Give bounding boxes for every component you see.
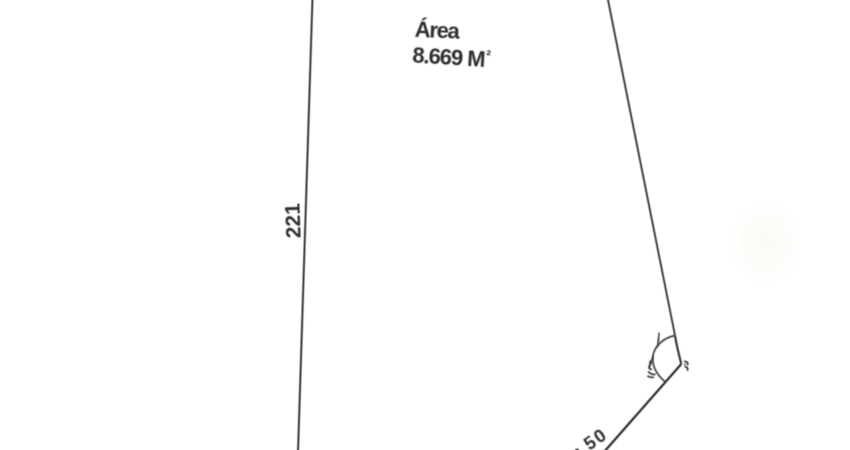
svg-text:Área: Área (414, 17, 461, 44)
svg-text:221: 221 (281, 203, 305, 239)
svg-text:8.669 M²: 8.669 M² (412, 42, 492, 72)
